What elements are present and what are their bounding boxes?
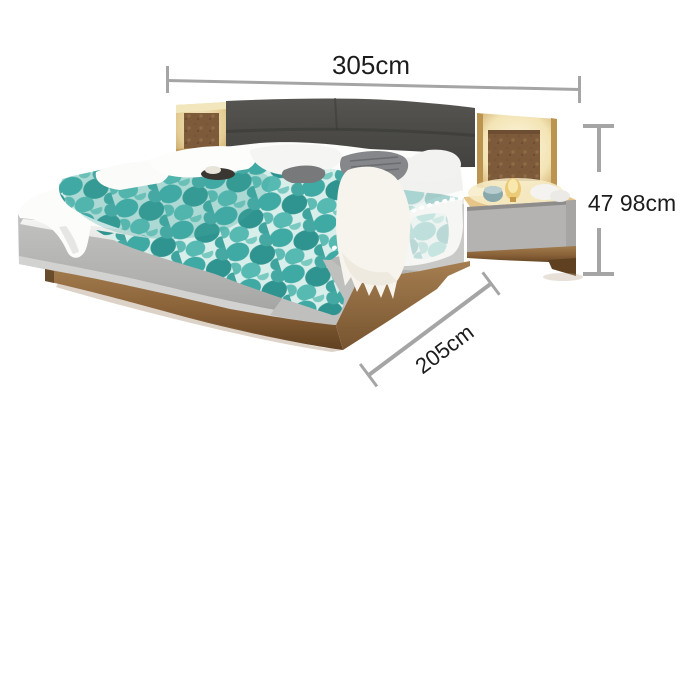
svg-text:305cm: 305cm xyxy=(332,50,410,80)
svg-text:47 98cm: 47 98cm xyxy=(588,190,676,216)
